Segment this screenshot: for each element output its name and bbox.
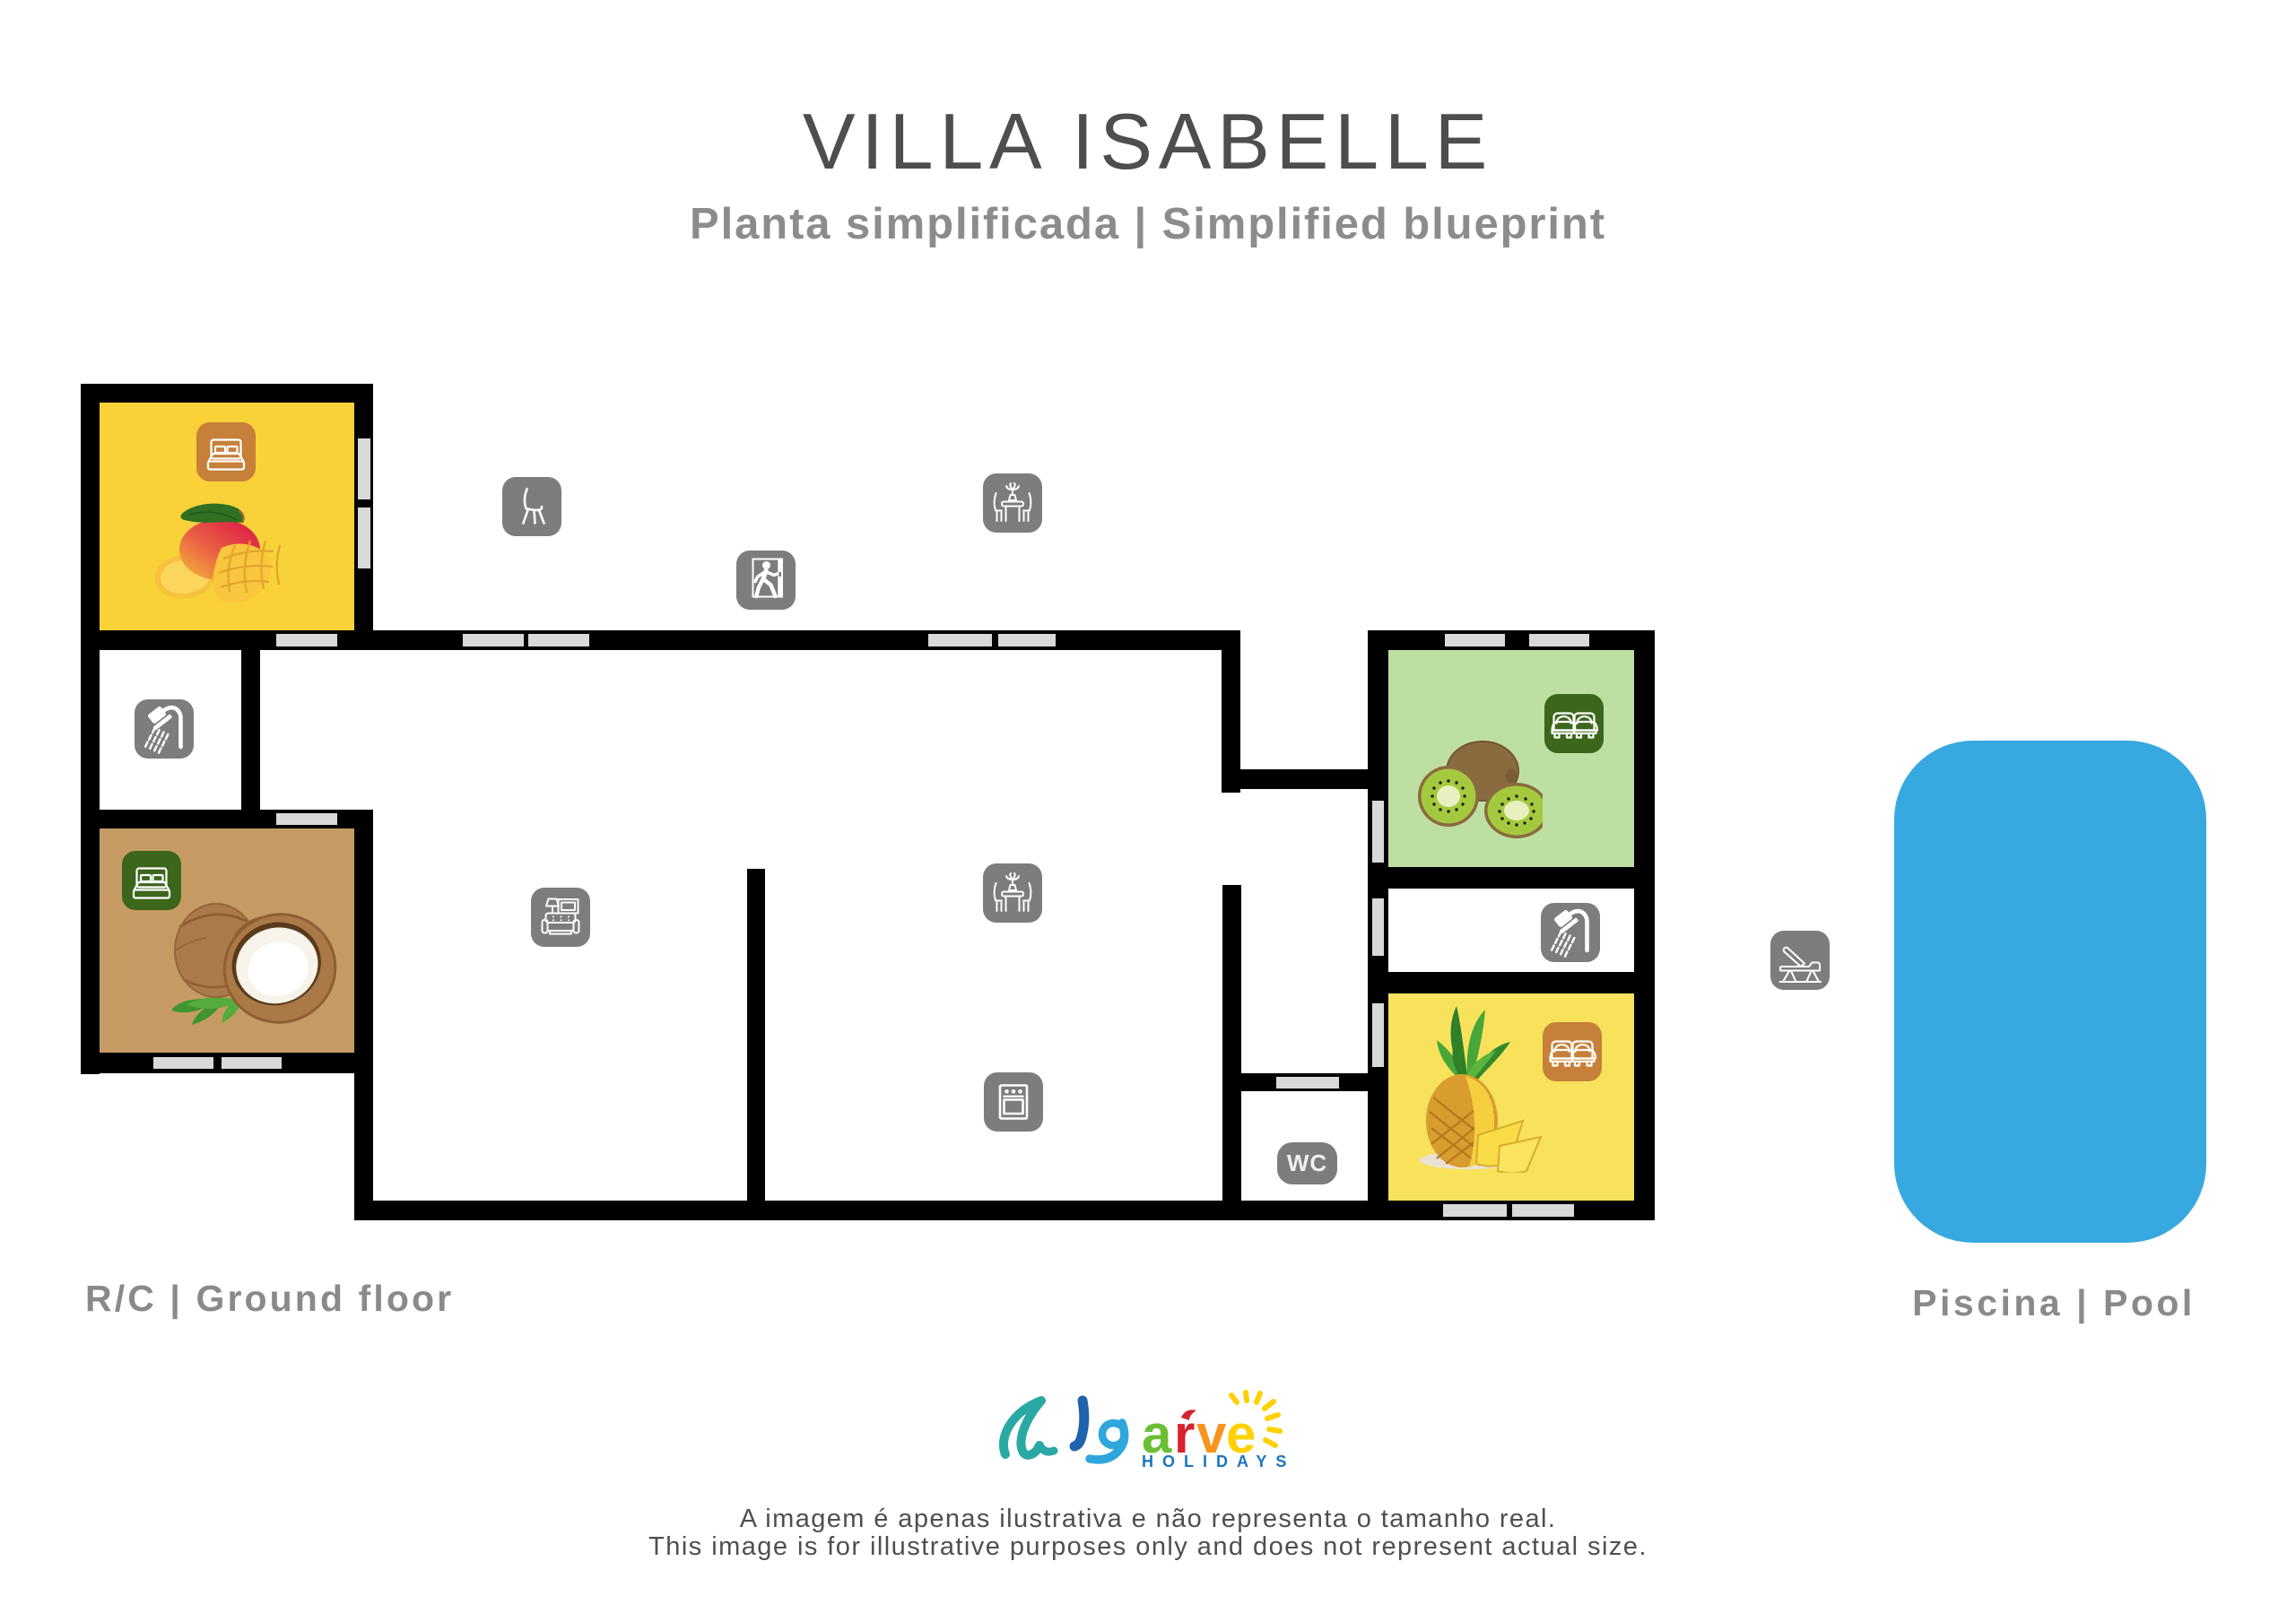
svg-text:HOLIDAYS: HOLIDAYS: [1142, 1453, 1295, 1470]
